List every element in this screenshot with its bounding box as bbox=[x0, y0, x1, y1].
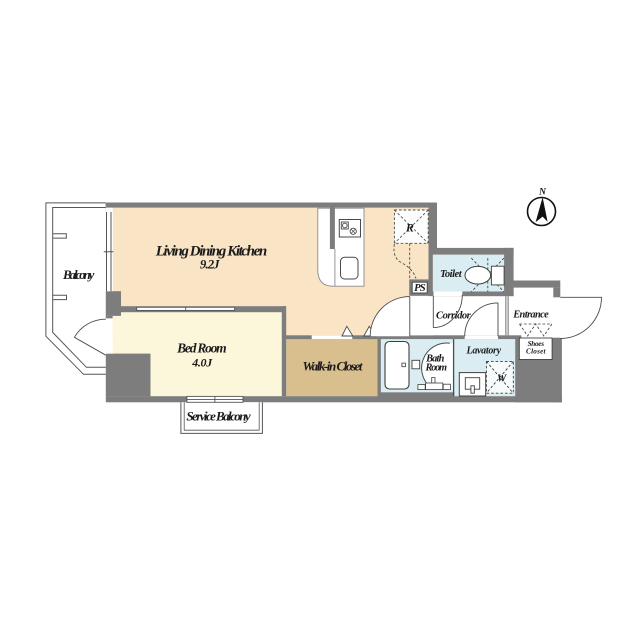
svg-text:R: R bbox=[405, 220, 414, 234]
svg-text:Entrance: Entrance bbox=[512, 309, 549, 320]
svg-text:Bed Room: Bed Room bbox=[176, 341, 227, 356]
svg-text:Closet: Closet bbox=[526, 348, 547, 356]
svg-text:Walk-in Closet: Walk-in Closet bbox=[303, 359, 363, 374]
svg-text:Corridor: Corridor bbox=[436, 311, 472, 322]
svg-text:Toilet: Toilet bbox=[440, 269, 463, 280]
svg-text:N: N bbox=[538, 187, 547, 198]
svg-text:Balcony: Balcony bbox=[62, 267, 95, 282]
svg-text:Room: Room bbox=[425, 362, 448, 373]
svg-text:W: W bbox=[497, 374, 507, 385]
svg-text:Lavatory: Lavatory bbox=[466, 346, 502, 357]
svg-text:9.2J: 9.2J bbox=[200, 258, 220, 272]
svg-text:4.0J: 4.0J bbox=[191, 355, 213, 369]
svg-text:Service Balcony: Service Balcony bbox=[186, 409, 251, 424]
svg-text:PS: PS bbox=[414, 283, 426, 294]
